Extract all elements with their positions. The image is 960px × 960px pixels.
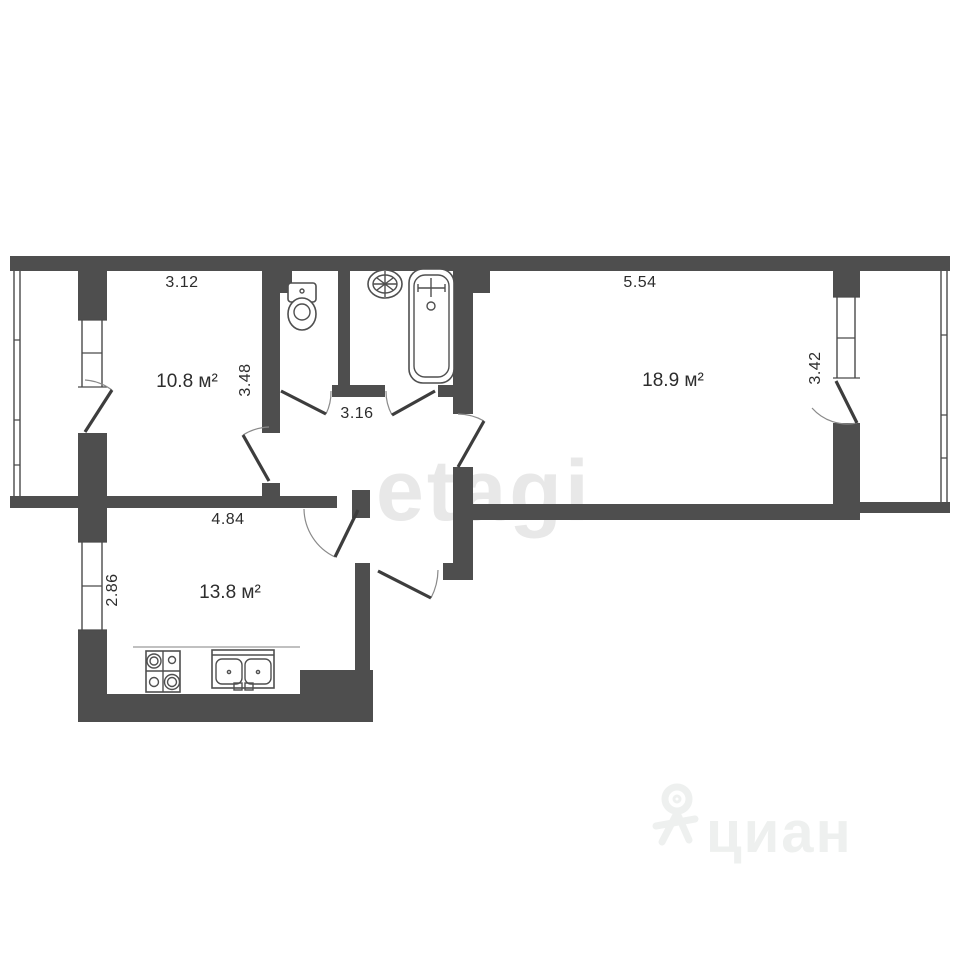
dim-room1-depth: 3.48 (237, 363, 254, 396)
dim-room2-width: 5.54 (623, 274, 656, 291)
door-entrance (378, 570, 438, 598)
balcony-left-glazing (14, 271, 20, 496)
wall-segment (833, 502, 950, 513)
wall-segment (262, 483, 280, 508)
room2-window (833, 297, 860, 378)
dim-room1-width: 3.12 (165, 274, 198, 291)
wall-segment (78, 433, 107, 496)
wall-segment (833, 271, 860, 297)
area-kitchen: 13.8 м² (199, 582, 261, 603)
area-room1: 10.8 м² (156, 371, 218, 392)
dim-hall-width: 3.16 (340, 405, 373, 422)
toilet-icon (288, 283, 316, 330)
wall-segment (338, 271, 350, 385)
wall-segment (10, 256, 950, 271)
door-room1-balcony (85, 380, 112, 432)
wall-segment (467, 504, 860, 520)
dim-room2-depth: 3.42 (807, 351, 824, 384)
door-kitchen (304, 509, 358, 557)
cian-pin-person-icon (656, 787, 695, 842)
balcony-right-glazing (941, 271, 947, 502)
wall-segment (262, 271, 280, 433)
wall-segment (443, 563, 467, 580)
door-bathroom (386, 391, 435, 415)
room1-window (78, 320, 107, 387)
wall-segment (78, 508, 107, 542)
wall-segment (78, 694, 373, 722)
floor-plan: etagi циан (0, 0, 960, 960)
wall-segment (78, 271, 107, 320)
bathtub-icon (409, 269, 454, 383)
wall-segment (10, 496, 337, 508)
wall-segment (332, 385, 385, 397)
watermark-cian: циан (656, 787, 853, 865)
wall-segment (453, 271, 473, 414)
stove-icon (146, 651, 180, 692)
washbasin-icon (368, 270, 402, 298)
watermark-cian-text: циан (706, 800, 853, 865)
wall-segment (833, 423, 860, 504)
wall-segment (355, 563, 370, 722)
area-room2: 18.9 м² (642, 370, 704, 391)
kitchen-window (78, 542, 107, 630)
watermark-etagi: etagi (376, 443, 592, 539)
door-room1 (243, 427, 269, 481)
dim-kitchen-width: 4.84 (211, 511, 244, 528)
dim-kitchen-depth: 2.86 (104, 573, 121, 606)
door-toilet (281, 391, 331, 414)
kitchen-sink-icon (212, 650, 274, 690)
door-room2-balcony (812, 381, 857, 424)
